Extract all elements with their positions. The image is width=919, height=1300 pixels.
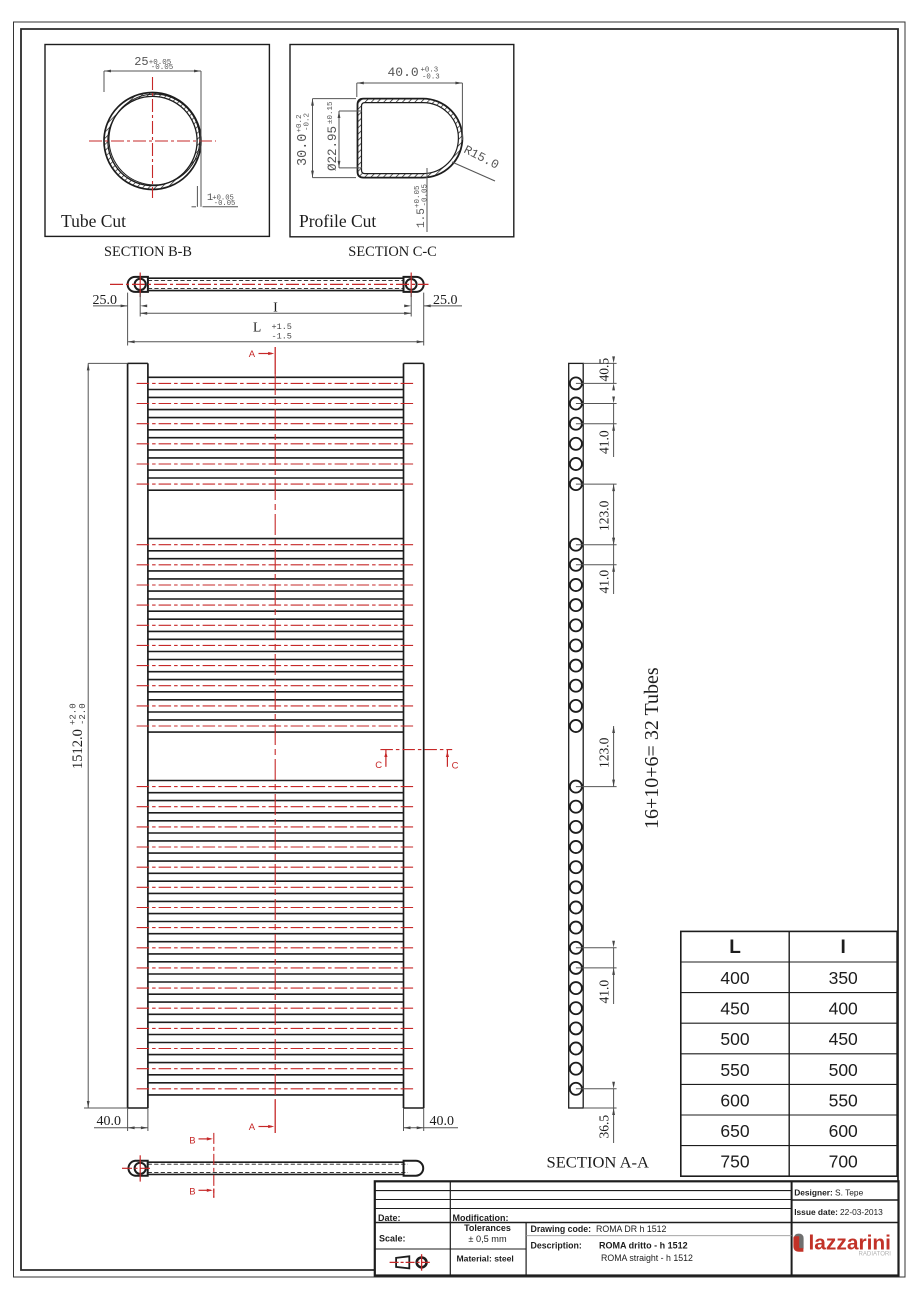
svg-text:Designer:: Designer: bbox=[794, 1187, 833, 1197]
svg-text:41.0: 41.0 bbox=[597, 430, 612, 454]
svg-text:RADIATORI: RADIATORI bbox=[859, 1251, 892, 1258]
svg-text:16+10+6= 32 Tubes: 16+10+6= 32 Tubes bbox=[641, 667, 663, 829]
svg-text:-0.05: -0.05 bbox=[422, 183, 430, 206]
svg-text:C: C bbox=[452, 761, 459, 772]
svg-text:S. Tepe: S. Tepe bbox=[835, 1187, 864, 1197]
svg-text:Drawing code:: Drawing code: bbox=[531, 1224, 592, 1234]
svg-text:1.5: 1.5 bbox=[416, 208, 428, 228]
svg-text:40.0: 40.0 bbox=[97, 1114, 122, 1129]
svg-text:Description:: Description: bbox=[531, 1241, 582, 1251]
svg-text:SECTION A-A: SECTION A-A bbox=[547, 1154, 650, 1171]
svg-text:25: 25 bbox=[134, 55, 148, 69]
svg-text:750: 750 bbox=[720, 1152, 749, 1172]
svg-text:SECTION C-C: SECTION C-C bbox=[348, 244, 437, 260]
svg-text:L: L bbox=[253, 320, 261, 335]
svg-text:A: A bbox=[249, 349, 256, 360]
svg-text:A: A bbox=[249, 1122, 256, 1133]
svg-text:25.0: 25.0 bbox=[93, 293, 118, 308]
svg-text:30.0: 30.0 bbox=[296, 134, 311, 166]
svg-text:40.5: 40.5 bbox=[597, 358, 612, 382]
svg-text:-0.2: -0.2 bbox=[304, 113, 312, 131]
svg-text:450: 450 bbox=[829, 1029, 858, 1049]
svg-text:22-03-2013: 22-03-2013 bbox=[840, 1207, 883, 1217]
svg-text:600: 600 bbox=[829, 1121, 858, 1141]
svg-text:-1.5: -1.5 bbox=[272, 332, 292, 342]
svg-text:350: 350 bbox=[829, 968, 858, 988]
svg-text:I: I bbox=[841, 937, 846, 958]
svg-text:650: 650 bbox=[720, 1121, 749, 1141]
svg-text:Ø22.95: Ø22.95 bbox=[326, 126, 340, 171]
svg-text:Profile Cut: Profile Cut bbox=[299, 211, 376, 231]
svg-text:40.0: 40.0 bbox=[388, 65, 419, 80]
svg-text:Issue date:: Issue date: bbox=[794, 1207, 838, 1217]
svg-text:Tube Cut: Tube Cut bbox=[61, 211, 126, 231]
svg-text:± 0,5 mm: ± 0,5 mm bbox=[468, 1234, 507, 1244]
svg-text:600: 600 bbox=[720, 1090, 749, 1110]
svg-text:-0.05: -0.05 bbox=[214, 200, 236, 208]
svg-text:500: 500 bbox=[720, 1029, 749, 1049]
svg-text:-0.3: -0.3 bbox=[422, 74, 440, 82]
svg-text:25.0: 25.0 bbox=[433, 293, 458, 308]
svg-text:Material: steel: Material: steel bbox=[457, 1254, 514, 1264]
svg-text:L: L bbox=[729, 937, 741, 958]
svg-text:+1.5: +1.5 bbox=[272, 322, 292, 332]
svg-text:B: B bbox=[189, 1186, 195, 1197]
svg-text:SECTION B-B: SECTION B-B bbox=[104, 244, 192, 260]
svg-text:ROMA straight - h 1512: ROMA straight - h 1512 bbox=[601, 1253, 693, 1263]
svg-text:400: 400 bbox=[720, 968, 749, 988]
svg-text:-0.05: -0.05 bbox=[151, 64, 174, 72]
svg-text:ROMA DR h 1512: ROMA DR h 1512 bbox=[596, 1224, 667, 1234]
svg-text:±0.15: ±0.15 bbox=[327, 101, 335, 124]
svg-text:450: 450 bbox=[720, 999, 749, 1019]
svg-text:Scale:: Scale: bbox=[379, 1234, 406, 1244]
svg-text:123.0: 123.0 bbox=[597, 500, 612, 531]
svg-text:123.0: 123.0 bbox=[597, 737, 612, 768]
svg-text:41.0: 41.0 bbox=[597, 980, 612, 1004]
svg-text:1512.0: 1512.0 bbox=[70, 729, 86, 769]
svg-text:ROMA dritto - h 1512: ROMA dritto - h 1512 bbox=[599, 1241, 688, 1251]
svg-text:40.0: 40.0 bbox=[430, 1114, 455, 1129]
svg-text:B: B bbox=[189, 1135, 195, 1146]
svg-text:+2.0: +2.0 bbox=[69, 703, 79, 725]
svg-text:C: C bbox=[375, 760, 382, 771]
svg-text:Tolerances: Tolerances bbox=[464, 1223, 511, 1233]
svg-text:Modification:: Modification: bbox=[453, 1213, 509, 1223]
svg-text:550: 550 bbox=[720, 1060, 749, 1080]
svg-text:I: I bbox=[273, 301, 278, 316]
svg-text:Date:: Date: bbox=[378, 1213, 401, 1223]
svg-text:-2.0: -2.0 bbox=[78, 703, 88, 725]
svg-text:36.5: 36.5 bbox=[597, 1115, 612, 1139]
svg-text:500: 500 bbox=[829, 1060, 858, 1080]
svg-text:700: 700 bbox=[829, 1152, 858, 1172]
svg-text:41.0: 41.0 bbox=[597, 570, 612, 594]
svg-text:550: 550 bbox=[829, 1090, 858, 1110]
svg-text:400: 400 bbox=[829, 999, 858, 1019]
